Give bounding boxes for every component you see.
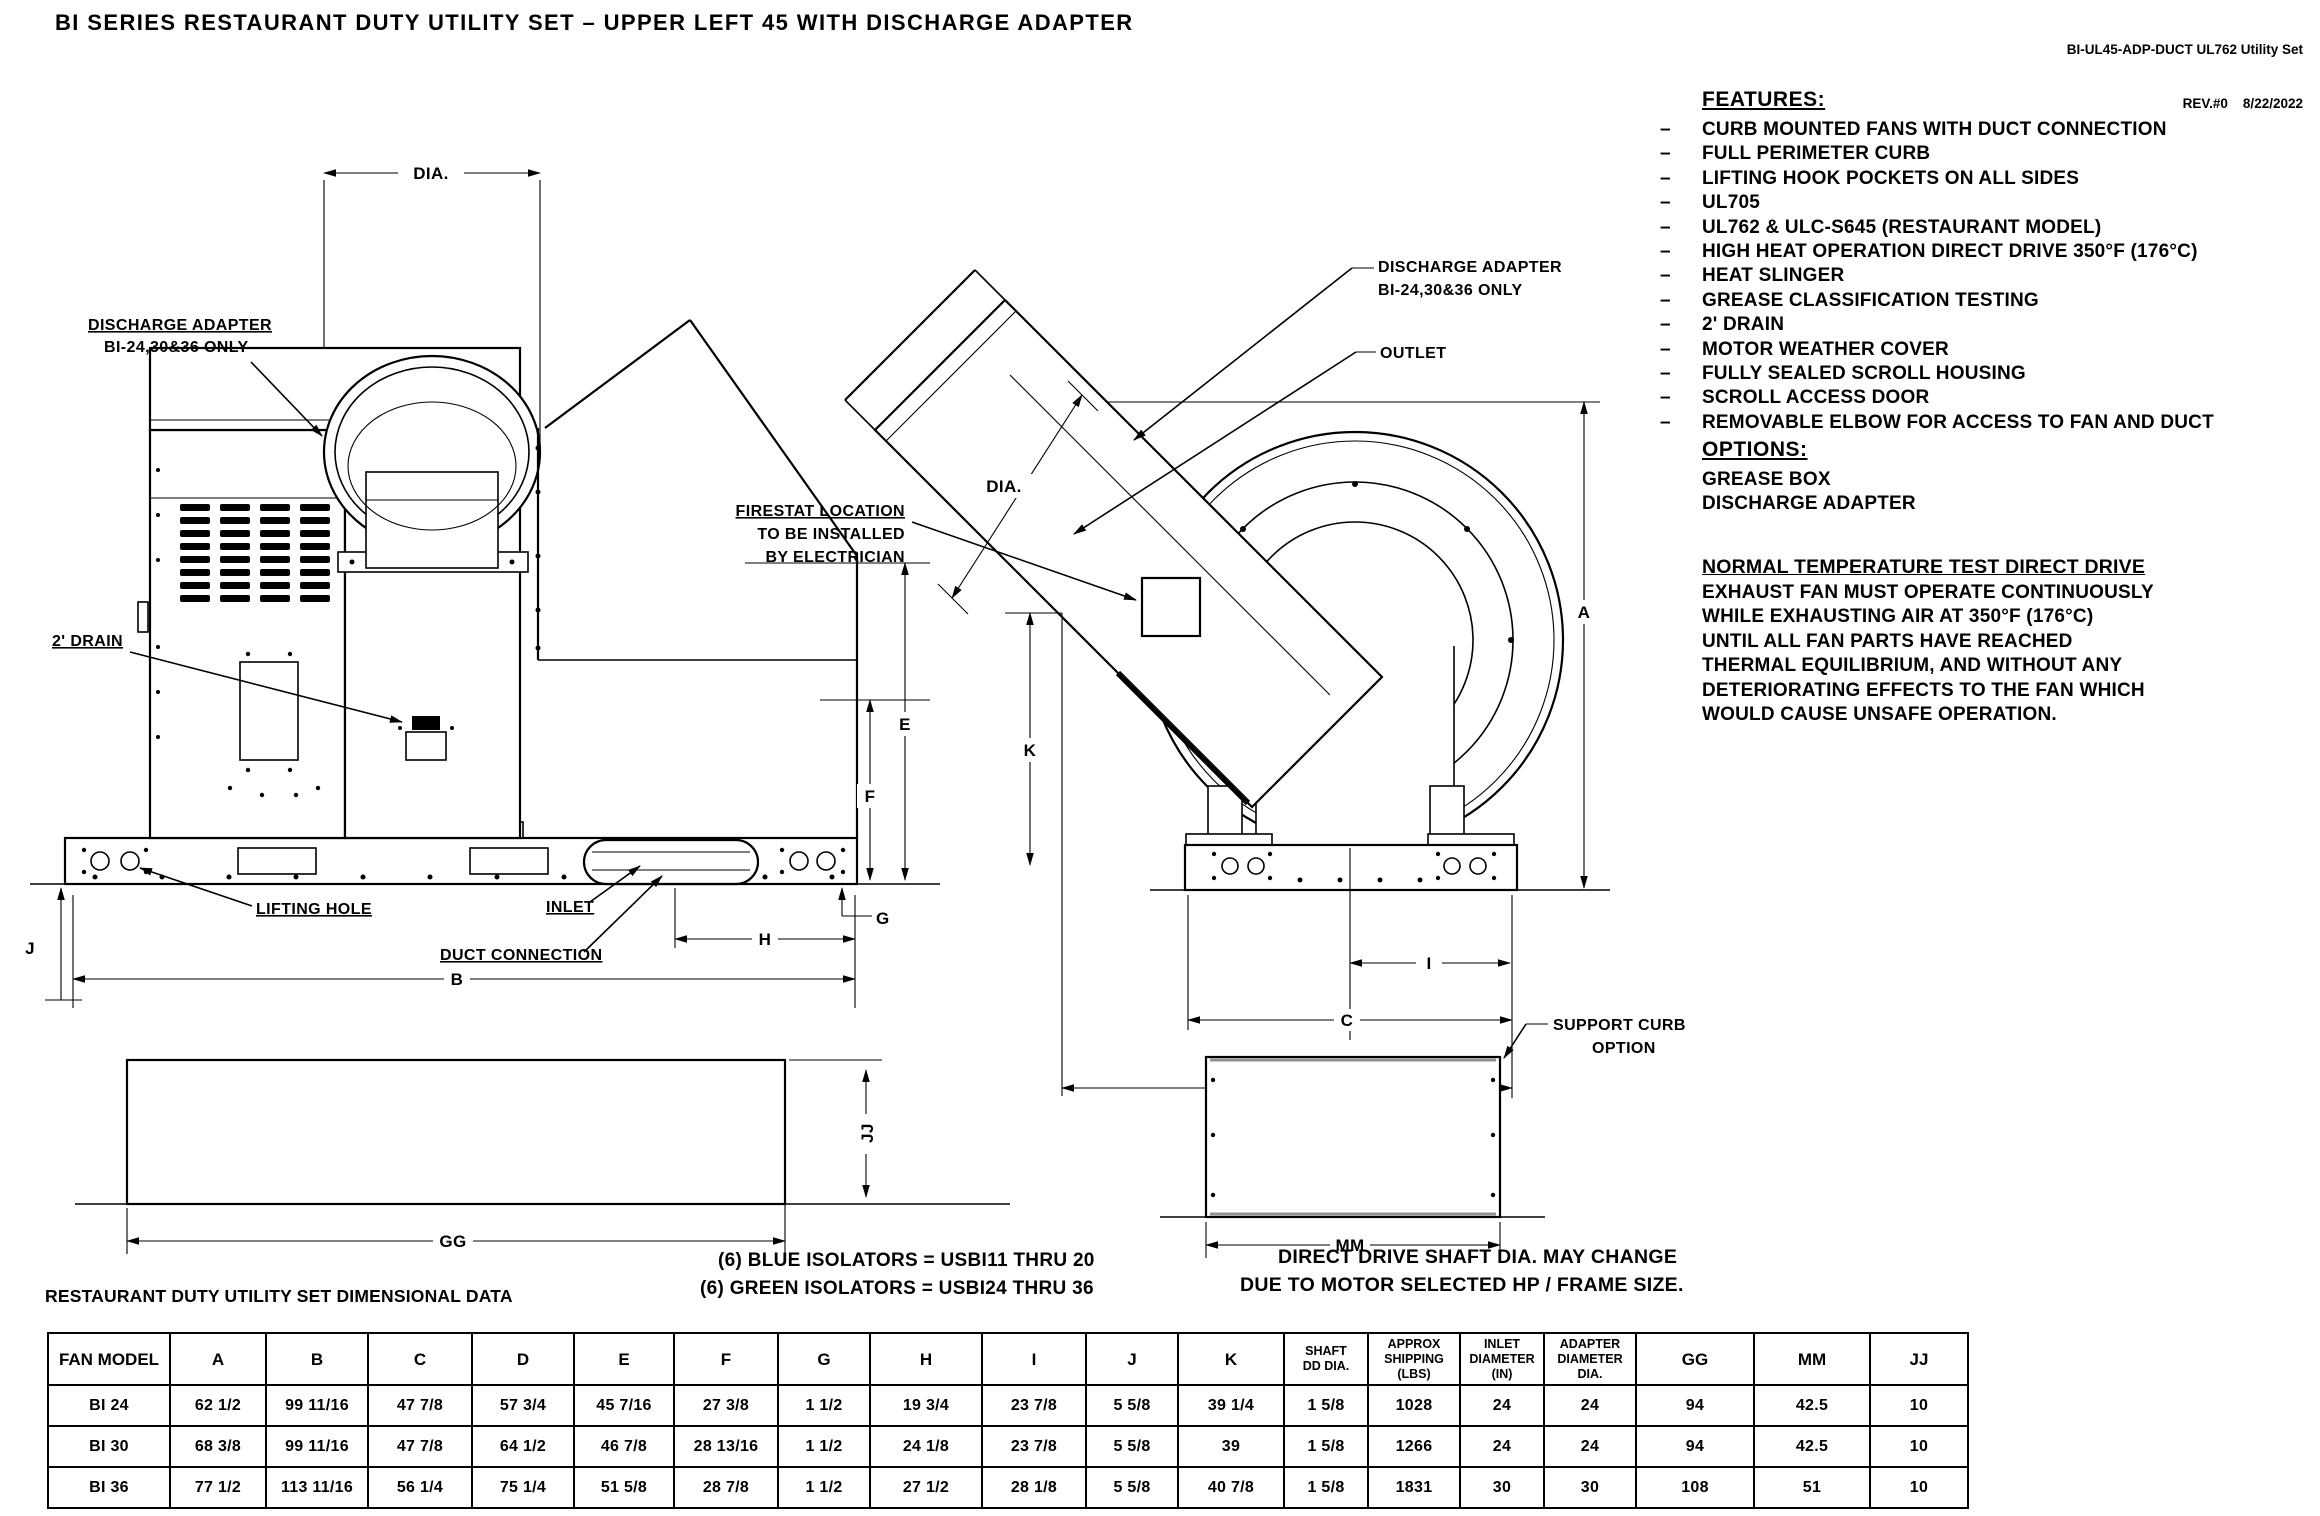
normal-temp-test-section: NORMAL TEMPERATURE TEST DIRECT DRIVE EXH… [1660, 556, 2320, 727]
label-lifting-hole: LIFTING HOLE [256, 901, 372, 918]
table-header-cell: MM [1754, 1333, 1870, 1385]
feature-item: –REMOVABLE ELBOW FOR ACCESS TO FAN AND D… [1660, 411, 2320, 435]
table-cell: 1 1/2 [778, 1467, 870, 1508]
table-cell: 47 7/8 [368, 1385, 472, 1426]
dim-k: K [1024, 741, 1037, 760]
normal-temp-test-line: EXHAUST FAN MUST OPERATE CONTINUOUSLY [1702, 581, 2320, 605]
dim-b: B [451, 970, 464, 989]
table-cell: 1 1/2 [778, 1385, 870, 1426]
curb-front-view: GG JJ [75, 1060, 1010, 1254]
table-cell: 28 13/16 [674, 1426, 778, 1467]
features-section: FEATURES: –CURB MOUNTED FANS WITH DUCT C… [1660, 88, 2320, 435]
table-cell: 1831 [1368, 1467, 1460, 1508]
drawing-sheet: { "doc": { "title": "BI SERIES RESTAURAN… [0, 0, 2320, 1516]
table-cell: 10 [1870, 1467, 1968, 1508]
table-cell: 47 7/8 [368, 1426, 472, 1467]
table-cell: 28 7/8 [674, 1467, 778, 1508]
table-cell: 24 [1544, 1426, 1636, 1467]
label-discharge-adapter-left: DISCHARGE ADAPTER [88, 317, 272, 334]
bullet-dash: – [1660, 167, 1702, 191]
table-cell: 42.5 [1754, 1426, 1870, 1467]
table-cell: 23 7/8 [982, 1426, 1086, 1467]
bullet-dash: – [1660, 386, 1702, 410]
table-header-cell: J [1086, 1333, 1178, 1385]
dim-g: G [876, 909, 890, 928]
feature-text: FULL PERIMETER CURB [1702, 142, 1930, 166]
dim-dia-left: DIA. [413, 164, 449, 183]
feature-item: –HIGH HEAT OPERATION DIRECT DRIVE 350°F … [1660, 240, 2320, 264]
table-cell: 10 [1870, 1426, 1968, 1467]
support-curb-view: SUPPORT CURB OPTION MM [1160, 1017, 1686, 1258]
table-header-cell: F [674, 1333, 778, 1385]
right-view-drawing: DISCHARGE ADAPTER BI-24,30&36 ONLY OUTLE… [736, 259, 1686, 1258]
feature-text: REMOVABLE ELBOW FOR ACCESS TO FAN AND DU… [1702, 411, 2214, 435]
options-section: OPTIONS: GREASE BOX DISCHARGE ADAPTER [1660, 438, 2320, 517]
table-cell: 30 [1544, 1467, 1636, 1508]
table-cell: 27 1/2 [870, 1467, 982, 1508]
dim-a: A [1578, 603, 1591, 622]
feature-item: –2' DRAIN [1660, 313, 2320, 337]
normal-temp-test-line: UNTIL ALL FAN PARTS HAVE REACHED [1702, 630, 2320, 654]
dim-dia-right: DIA. [986, 477, 1022, 496]
table-header-fan-model: FAN MODEL [48, 1333, 170, 1385]
table-header-inlet-dia: INLET DIAMETER (IN) [1460, 1333, 1544, 1385]
features-heading: FEATURES: [1702, 88, 2320, 112]
feature-item: –SCROLL ACCESS DOOR [1660, 386, 2320, 410]
note-blue-isolators: (6) BLUE ISOLATORS = USBI11 THRU 20 [718, 1250, 1095, 1272]
bullet-dash: – [1660, 338, 1702, 362]
table-cell: 24 [1544, 1385, 1636, 1426]
page-title: BI SERIES RESTAURANT DUTY UTILITY SET – … [55, 10, 1134, 36]
table-cell: 39 1/4 [1178, 1385, 1284, 1426]
feature-text: UL705 [1702, 191, 1760, 215]
label-discharge-adapter-left-2: BI-24,30&36 ONLY [104, 339, 249, 356]
table-cell: 42.5 [1754, 1385, 1870, 1426]
table-cell: 24 [1460, 1385, 1544, 1426]
feature-item: –CURB MOUNTED FANS WITH DUCT CONNECTION [1660, 118, 2320, 142]
table-cell: 108 [1636, 1467, 1754, 1508]
bullet-dash: – [1660, 142, 1702, 166]
feature-text: GREASE CLASSIFICATION TESTING [1702, 289, 2039, 313]
normal-temp-test-line: WOULD CAUSE UNSAFE OPERATION. [1702, 703, 2320, 727]
table-header-cell: H [870, 1333, 982, 1385]
table-cell: 1 1/2 [778, 1426, 870, 1467]
table-cell: 27 3/8 [674, 1385, 778, 1426]
table-cell: 23 7/8 [982, 1385, 1086, 1426]
table-header-cell: B [266, 1333, 368, 1385]
label-discharge-adapter-right-2: BI-24,30&36 ONLY [1378, 282, 1523, 299]
table-cell: 39 [1178, 1426, 1284, 1467]
table-cell: 57 3/4 [472, 1385, 574, 1426]
option-item: DISCHARGE ADAPTER [1702, 492, 2320, 516]
bullet-dash: – [1660, 313, 1702, 337]
dim-c: C [1341, 1011, 1354, 1030]
dim-gg: GG [439, 1232, 466, 1251]
left-view-drawing: DISCHARGE ADAPTER BI-24,30&36 ONLY 2' DR… [25, 161, 940, 1008]
table-cell: 24 [1460, 1426, 1544, 1467]
table-cell: 46 7/8 [574, 1426, 674, 1467]
option-item: GREASE BOX [1702, 468, 2320, 492]
table-cell: 1028 [1368, 1385, 1460, 1426]
label-support-curb-2: OPTION [1592, 1040, 1656, 1057]
table-cell: 40 7/8 [1178, 1467, 1284, 1508]
feature-text: FULLY SEALED SCROLL HOUSING [1702, 362, 2026, 386]
table-caption: RESTAURANT DUTY UTILITY SET DIMENSIONAL … [45, 1286, 513, 1307]
table-cell: 19 3/4 [870, 1385, 982, 1426]
table-header-row: FAN MODEL A B C D E F G H I J K SHAFT DD… [48, 1333, 1968, 1385]
feature-item: –HEAT SLINGER [1660, 264, 2320, 288]
table-cell: 5 5/8 [1086, 1467, 1178, 1508]
bullet-dash: – [1660, 216, 1702, 240]
feature-text: MOTOR WEATHER COVER [1702, 338, 1949, 362]
table-header-cell: C [368, 1333, 472, 1385]
note-shaft-line2: DUE TO MOTOR SELECTED HP / FRAME SIZE. [1240, 1274, 1684, 1297]
table-cell: 28 1/8 [982, 1467, 1086, 1508]
firestat-box [1142, 578, 1200, 636]
feature-item: –FULL PERIMETER CURB [1660, 142, 2320, 166]
table-cell: 5 5/8 [1086, 1385, 1178, 1426]
table-cell: 1 5/8 [1284, 1385, 1368, 1426]
table-header-cell: A [170, 1333, 266, 1385]
table-cell: 64 1/2 [472, 1426, 574, 1467]
label-firestat-2: TO BE INSTALLED [757, 526, 905, 543]
feature-item: –UL705 [1660, 191, 2320, 215]
table-cell: 94 [1636, 1385, 1754, 1426]
feature-item: –LIFTING HOOK POCKETS ON ALL SIDES [1660, 167, 2320, 191]
table-cell: 1 5/8 [1284, 1426, 1368, 1467]
feature-text: 2' DRAIN [1702, 313, 1784, 337]
feature-text: UL762 & ULC-S645 (RESTAURANT MODEL) [1702, 216, 2101, 240]
label-firestat-1: FIRESTAT LOCATION [736, 503, 905, 520]
table-cell: 62 1/2 [170, 1385, 266, 1426]
normal-temp-test-line: THERMAL EQUILIBRIUM, AND WITHOUT ANY [1702, 654, 2320, 678]
bullet-dash: – [1660, 411, 1702, 435]
doc-number: BI-UL45-ADP-DUCT UL762 Utility Set [2067, 41, 2303, 59]
table-cell: 51 [1754, 1467, 1870, 1508]
label-drain: 2' DRAIN [52, 633, 123, 650]
table-cell: 1266 [1368, 1426, 1460, 1467]
label-discharge-adapter-right: DISCHARGE ADAPTER [1378, 259, 1562, 276]
table-cell: BI 30 [48, 1426, 170, 1467]
table-cell: 10 [1870, 1385, 1968, 1426]
table-cell: 5 5/8 [1086, 1426, 1178, 1467]
table-cell: 99 11/16 [266, 1426, 368, 1467]
table-header-cell: JJ [1870, 1333, 1968, 1385]
table-header-cell: I [982, 1333, 1086, 1385]
note-shaft-line1: DIRECT DRIVE SHAFT DIA. MAY CHANGE [1278, 1246, 1677, 1269]
normal-temp-test-line: DETERIORATING EFFECTS TO THE FAN WHICH [1702, 679, 2320, 703]
feature-text: LIFTING HOOK POCKETS ON ALL SIDES [1702, 167, 2079, 191]
table-cell: 24 1/8 [870, 1426, 982, 1467]
bullet-dash: – [1660, 289, 1702, 313]
label-inlet: INLET [546, 899, 594, 916]
table-header-cell: D [472, 1333, 574, 1385]
table-cell: 56 1/4 [368, 1467, 472, 1508]
table-cell: 1 5/8 [1284, 1467, 1368, 1508]
label-firestat-3: BY ELECTRICIAN [765, 549, 905, 566]
dim-h: H [759, 930, 772, 949]
feature-text: SCROLL ACCESS DOOR [1702, 386, 1929, 410]
bullet-dash: – [1660, 264, 1702, 288]
table-header-cell: E [574, 1333, 674, 1385]
table-header-shaft-dia: SHAFT DD DIA. [1284, 1333, 1368, 1385]
bullet-dash: – [1660, 118, 1702, 142]
table-cell: 30 [1460, 1467, 1544, 1508]
table-header-shipping: APPROX SHIPPING (LBS) [1368, 1333, 1460, 1385]
feature-text: HIGH HEAT OPERATION DIRECT DRIVE 350°F (… [1702, 240, 2198, 264]
table-cell: 94 [1636, 1426, 1754, 1467]
feature-item: –FULLY SEALED SCROLL HOUSING [1660, 362, 2320, 386]
table-cell: 113 11/16 [266, 1467, 368, 1508]
dimensional-data-table: FAN MODEL A B C D E F G H I J K SHAFT DD… [47, 1332, 1969, 1509]
normal-temp-test-line: WHILE EXHAUSTING AIR AT 350°F (176°C) [1702, 605, 2320, 629]
table-cell: 45 7/16 [574, 1385, 674, 1426]
bullet-dash: – [1660, 191, 1702, 215]
table-cell: 77 1/2 [170, 1467, 266, 1508]
table-cell: 51 5/8 [574, 1467, 674, 1508]
table-cell: BI 24 [48, 1385, 170, 1426]
feature-text: CURB MOUNTED FANS WITH DUCT CONNECTION [1702, 118, 2167, 142]
table-row: BI 24 62 1/2 99 11/16 47 7/8 57 3/4 45 7… [48, 1385, 1968, 1426]
dim-j: J [25, 939, 35, 958]
table-cell: BI 36 [48, 1467, 170, 1508]
table-header-cell: K [1178, 1333, 1284, 1385]
dim-e: E [899, 715, 911, 734]
table-cell: 75 1/4 [472, 1467, 574, 1508]
bullet-dash: – [1660, 362, 1702, 386]
table-header-adapter-dia: ADAPTER DIAMETER DIA. [1544, 1333, 1636, 1385]
options-heading: OPTIONS: [1702, 438, 2320, 462]
table-header-cell: GG [1636, 1333, 1754, 1385]
table-cell: 68 3/8 [170, 1426, 266, 1467]
feature-item: –UL762 & ULC-S645 (RESTAURANT MODEL) [1660, 216, 2320, 240]
label-duct-connection: DUCT CONNECTION [440, 947, 602, 964]
feature-item: –MOTOR WEATHER COVER [1660, 338, 2320, 362]
feature-text: HEAT SLINGER [1702, 264, 1844, 288]
label-outlet: OUTLET [1380, 345, 1446, 362]
dim-f: F [865, 787, 876, 806]
table-row: BI 36 77 1/2 113 11/16 56 1/4 75 1/4 51 … [48, 1467, 1968, 1508]
table-row: BI 30 68 3/8 99 11/16 47 7/8 64 1/2 46 7… [48, 1426, 1968, 1467]
normal-temp-test-heading: NORMAL TEMPERATURE TEST DIRECT DRIVE [1702, 556, 2320, 579]
label-support-curb-1: SUPPORT CURB [1553, 1017, 1686, 1034]
table-header-cell: G [778, 1333, 870, 1385]
table-cell: 99 11/16 [266, 1385, 368, 1426]
note-green-isolators: (6) GREEN ISOLATORS = USBI24 THRU 36 [700, 1278, 1094, 1300]
feature-item: –GREASE CLASSIFICATION TESTING [1660, 289, 2320, 313]
dim-jj: JJ [858, 1123, 877, 1143]
dim-i: I [1426, 954, 1431, 973]
bullet-dash: – [1660, 240, 1702, 264]
